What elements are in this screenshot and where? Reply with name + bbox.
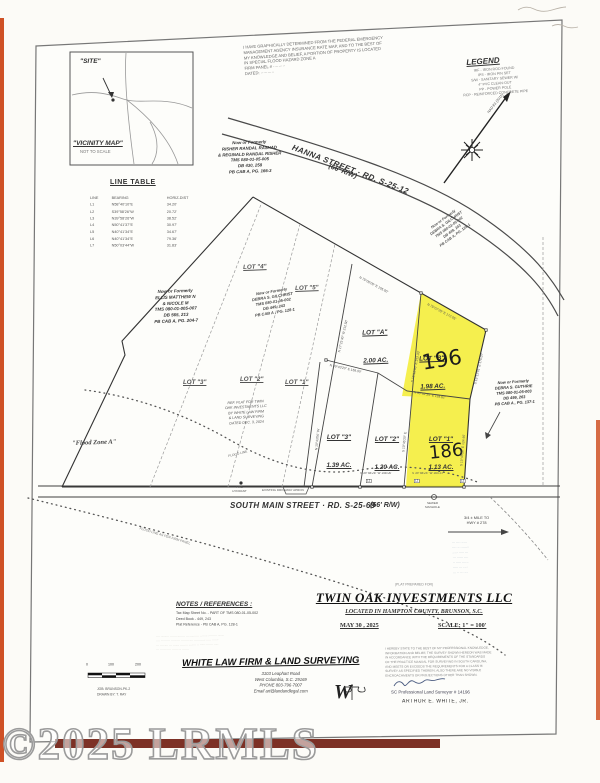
line-table-cell: N58°40'10"E [112, 202, 167, 209]
old-lot3-label: LOT "3" [183, 379, 206, 387]
old-lot1-label: LOT "1" [285, 379, 308, 387]
line-table-cell: 38.52' [167, 215, 204, 222]
bearing-lot-2-bottom: S 39°58'26" W 158.00' [360, 472, 392, 476]
lot-3-acreage: 1.39 AC. [318, 462, 360, 470]
scale-tick-0: 0 [86, 663, 88, 668]
line-table-header-line: LINE [90, 195, 112, 202]
line-table-cell: L7 [90, 242, 112, 249]
lot-3-label: LOT "3" 1.39 AC. [318, 414, 360, 490]
sewer-manhole-label: SEWER MANHOLE [424, 502, 441, 510]
plat-title: TWIN OAK INVESTMENTS LLC [298, 590, 530, 606]
lot-2-label: LOT "2" 1.20 AC. [366, 416, 408, 492]
lot-2-acreage: 1.20 AC. [366, 464, 408, 472]
line-table: LINE BEARING HORIZ-DIST L1N58°40'10"E34.… [90, 190, 204, 249]
line-table-title: LINE TABLE [110, 179, 156, 188]
old-lot4-label: LOT "4" [243, 263, 267, 272]
street-tie-l1: L1 [366, 479, 371, 483]
firm-logo-letter: W [334, 680, 352, 705]
lot-a-acreage: 2.00 AC. [354, 356, 398, 366]
old-lot5-label: LOT "5" [295, 284, 319, 293]
south-main-street-label: SOUTH MAIN STREET · RD. S-25-69 [230, 501, 375, 511]
street-tie-l2: L2 [414, 479, 419, 483]
owner-risher: Now or Formerly RISHER RANDAL RASHAD & R… [203, 139, 297, 177]
lot-1-acreage: 1.13 AC. [420, 464, 462, 472]
old-lot2-label: LOT "2" [240, 376, 263, 384]
notes-title: NOTES / REFERENCES : [176, 601, 252, 609]
cert-license: SC Professional Land Surveyor # 14196 [391, 690, 470, 696]
scale-tick-100: 100 [108, 663, 114, 668]
driveway-apron-label: EXISTING DRIVEWAY APRON [262, 489, 304, 493]
line-table-cell: 31.83' [167, 242, 204, 249]
owner-ellis: Now or Formerly ELLIS MATTHEW N & NICOLE… [119, 287, 232, 327]
cert-surveyor-name: ARTHUR E. WHITE, JR. [402, 699, 469, 705]
line-table-header-bearing: BEARING [112, 195, 167, 202]
site-label: "SITE" [80, 58, 101, 66]
firm-address: 3103 Leaphart Road West Columbia, S.C. 2… [219, 671, 343, 695]
line-table-cell: 34.20' [167, 202, 204, 209]
line-table-header-dist: HORIZ-DIST [167, 195, 204, 202]
plat-document: "SITE" "VICINITY MAP" NOT TO SCALE I HAV… [0, 0, 600, 783]
lot-1-handwritten-number: 186 [428, 439, 465, 465]
mile-note: 3/4 ± MILE TO HWY # 278 [452, 516, 501, 526]
mls-watermark: ©2025 LRMLS [2, 718, 319, 770]
vicinity-not-to-scale: NOT TO SCALE [80, 150, 111, 155]
line-table-cell: L2 [90, 208, 112, 215]
faint-field-note: ··· ···· ····· ···· ·· ········ ····· ··… [452, 540, 470, 576]
line-table-cell: S39°58'26"W [112, 208, 167, 215]
line-table-cell: N40°41'34"E [112, 235, 167, 242]
lot-a-name: LOT "A" [353, 328, 397, 338]
street-tie-l3: L3 [460, 479, 465, 483]
plat-date: MAY 30 , 2025 [340, 622, 379, 630]
plat-location: LOCATED IN HAMPTON COUNTY, BRUNSON, S.C. [298, 609, 530, 617]
line-table-cell: L4 [90, 222, 112, 229]
line-table-cell: N39°58'26"W [112, 215, 167, 222]
lot-2-name: LOT "2" [366, 436, 408, 444]
line-table-cell: 34.67' [167, 229, 204, 236]
cert-statement: I HEREBY STATE TO THE BEST OF MY PROFESS… [385, 646, 536, 679]
line-table-cell: N50°03'44"W [112, 242, 167, 249]
vicinity-map-title: "VICINITY MAP" [73, 140, 123, 148]
line-table-cell: 30.97' [167, 222, 204, 229]
line-table-cell: N40°41'34"E [112, 229, 167, 236]
notes-body: Tax Map Sheet No. - PART OF TMS 080-01-0… [176, 611, 258, 628]
line-table-cell: 20.72' [167, 208, 204, 215]
line-table-cell: N50°41'37"E [112, 222, 167, 229]
line-table-cell: L5 [90, 229, 112, 236]
job-info: JOB: BRUNSON-PK-2 DRAWN BY: T. RAY [97, 687, 130, 698]
bearing-lot-1-bottom: S 39°58'24" W 164.37' [412, 472, 444, 476]
lot-3-name: LOT "3" [318, 434, 360, 442]
scale-tick-200: 200 [135, 663, 141, 668]
line-table-cell: 79.36' [167, 235, 204, 242]
flood-zone-label: "Flood Zone A" [72, 438, 116, 448]
line-table-cell: L3 [90, 215, 112, 222]
plat-scale: SCALE: 1" = 100' [438, 622, 486, 630]
scale-bar [88, 673, 145, 678]
fire-hydrant-icon [239, 481, 242, 484]
line-table-cell: L6 [90, 235, 112, 242]
fire-hydrant-label: FIRE HYDRANT [232, 486, 247, 494]
ref-plat-note: REF. PLAT FOR TWIN OAK INVESTMENTS LLC B… [211, 398, 281, 427]
south-main-rw-label: (66' R/W) [370, 502, 400, 511]
plat-prepared-for: (PLAT PREPARED FOR) [300, 583, 528, 587]
line-table-cell: L1 [90, 202, 112, 209]
